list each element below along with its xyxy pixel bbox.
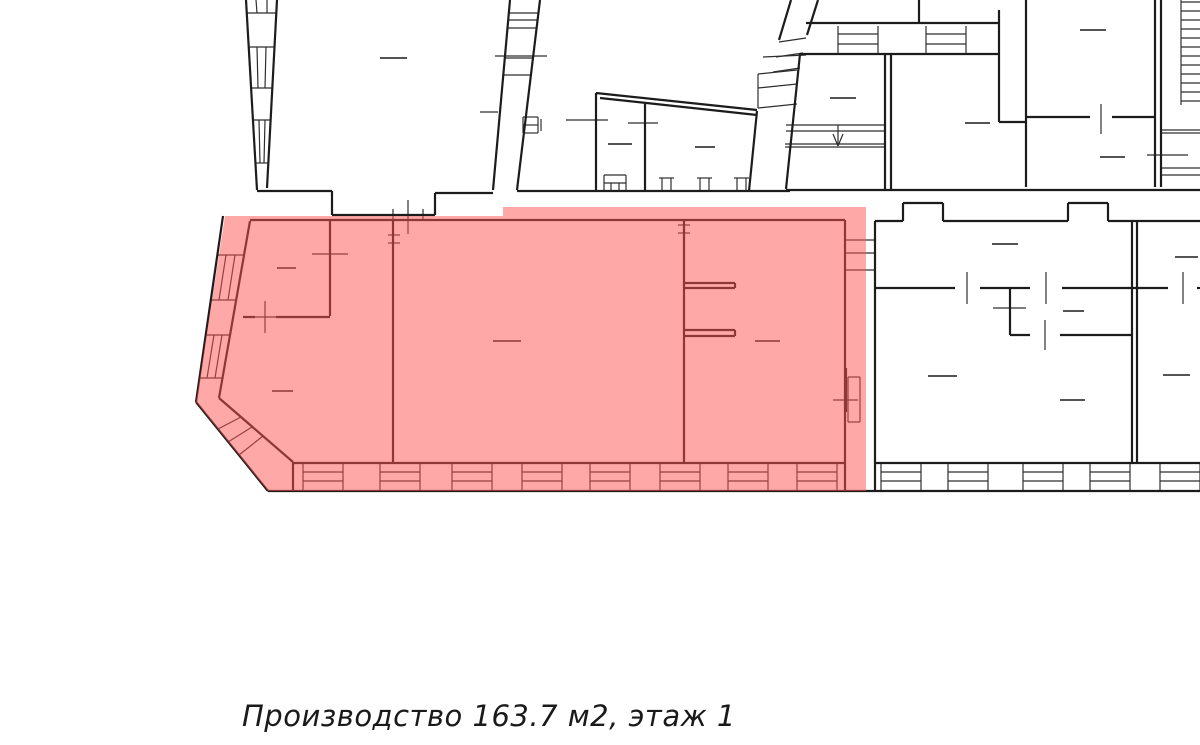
area-caption: Производство 163.7 м2, этаж 1 (242, 699, 736, 733)
highlighted-area-production[interactable] (196, 207, 866, 491)
floorplan-canvas (0, 0, 1200, 745)
floorplan-page: Производство 163.7 м2, этаж 1 (0, 0, 1200, 745)
